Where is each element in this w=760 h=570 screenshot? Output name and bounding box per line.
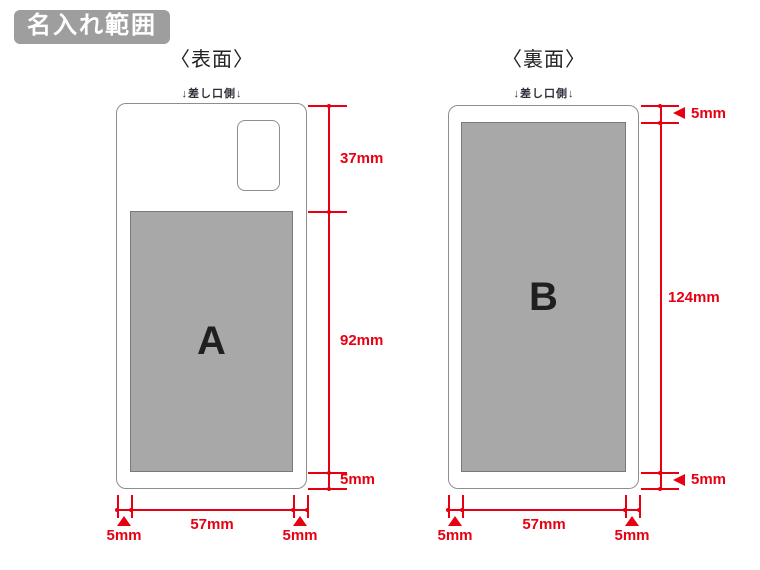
- back-dim-left-margin: 5mm: [435, 528, 475, 545]
- dimension-dot: [658, 104, 662, 108]
- dimension-dot: [327, 210, 331, 214]
- front-dim-top-height: 37mm: [340, 151, 383, 168]
- dimension-line: [448, 509, 640, 511]
- name-print-area-badge: 名入れ範囲: [14, 10, 170, 44]
- dimension-dot: [305, 508, 309, 512]
- front-dim-right-margin: 5mm: [280, 528, 320, 545]
- dimension-dot: [658, 487, 662, 491]
- dimension-dot: [291, 508, 295, 512]
- back-insertion-side-label: ↓差し口側↓: [448, 85, 640, 101]
- dimension-dot: [115, 508, 119, 512]
- front-inner-window: [237, 120, 280, 191]
- dimension-extension-line: [625, 495, 627, 518]
- front-dim-area-height: 92mm: [340, 333, 383, 350]
- dimension-dot: [658, 121, 662, 125]
- dimension-extension-line: [131, 495, 133, 518]
- dimension-dot: [327, 471, 331, 475]
- dimension-extension-line: [639, 495, 641, 518]
- dimension-extension-line: [117, 495, 119, 518]
- dimension-line: [328, 105, 330, 489]
- left-arrow-marker: [673, 474, 685, 486]
- dimension-extension-line: [462, 495, 464, 518]
- dimension-line: [660, 105, 662, 489]
- dimension-dot: [327, 104, 331, 108]
- dimension-extension-line: [293, 495, 295, 518]
- dimension-dot: [446, 508, 450, 512]
- back-print-area-label: B: [529, 275, 558, 320]
- front-dim-left-margin: 5mm: [104, 528, 144, 545]
- back-print-area: B: [461, 122, 626, 472]
- back-dim-area-height: 124mm: [668, 290, 720, 307]
- dimension-dot: [637, 508, 641, 512]
- front-dim-bottom-margin: 5mm: [340, 472, 375, 489]
- dimension-dot: [460, 508, 464, 512]
- back-dim-bottom-margin: 5mm: [691, 472, 726, 489]
- dimension-extension-line: [448, 495, 450, 518]
- dimension-line: [117, 509, 308, 511]
- front-print-area: A: [130, 211, 293, 472]
- front-title: 〈表面〉: [116, 43, 308, 72]
- print-area-spec-diagram: 名入れ範囲 〈表面〉 ↓差し口側↓ A 37mm 92mm 5mm 57mm 5…: [0, 0, 760, 570]
- dimension-dot: [129, 508, 133, 512]
- front-insertion-side-label: ↓差し口側↓: [116, 85, 308, 101]
- dimension-extension-line: [307, 495, 309, 518]
- dimension-dot: [327, 487, 331, 491]
- dimension-dot: [658, 471, 662, 475]
- dimension-dot: [623, 508, 627, 512]
- back-title: 〈裏面〉: [448, 43, 640, 72]
- left-arrow-marker: [673, 107, 685, 119]
- back-dim-right-margin: 5mm: [612, 528, 652, 545]
- front-print-area-label: A: [197, 319, 226, 364]
- back-dim-top-margin: 5mm: [691, 106, 726, 123]
